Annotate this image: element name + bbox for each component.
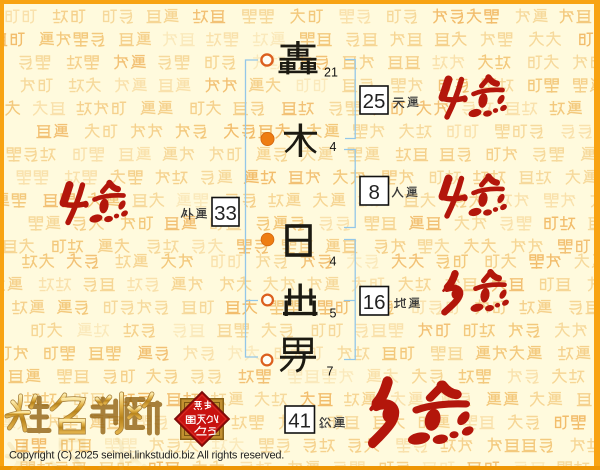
svg-text:5: 5 xyxy=(330,307,337,321)
svg-text:Copyright (C) 2025 seimei.link: Copyright (C) 2025 seimei.linkstudio.biz… xyxy=(9,450,284,462)
svg-text:4: 4 xyxy=(330,140,337,154)
svg-text:8: 8 xyxy=(368,181,379,204)
svg-text:7: 7 xyxy=(327,365,334,379)
svg-text:4: 4 xyxy=(330,255,337,269)
svg-text:41: 41 xyxy=(288,410,311,433)
svg-text:16: 16 xyxy=(363,291,386,314)
svg-text:33: 33 xyxy=(214,202,237,225)
svg-text:25: 25 xyxy=(363,90,386,113)
svg-text:21: 21 xyxy=(324,66,338,80)
